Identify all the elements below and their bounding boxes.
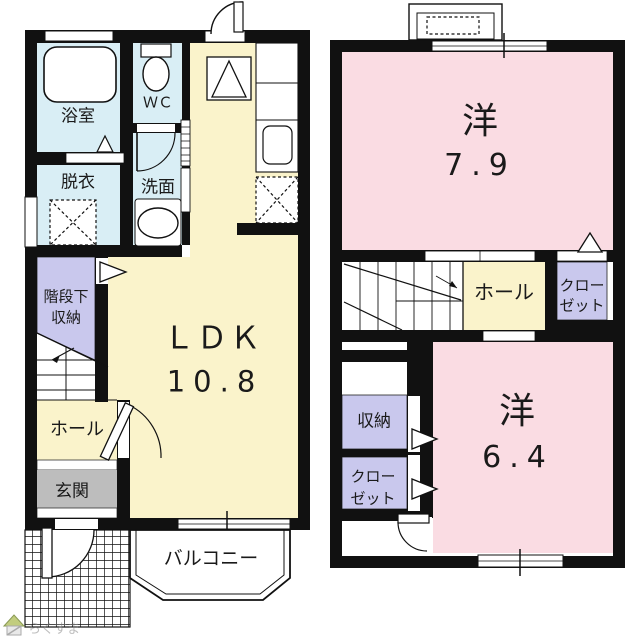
floor-plan-drawing <box>0 0 640 640</box>
landing2-2f <box>342 521 407 553</box>
label-room64-size: 6.4 <box>482 443 554 473</box>
label-entrance: 玄関 <box>55 484 89 501</box>
sliding-door-panel <box>181 168 190 212</box>
label-understair-2: 収納 <box>51 311 81 326</box>
sink-basin-icon <box>138 208 178 238</box>
label-hall-2f: ホール <box>474 282 534 302</box>
label-storage-2f: 収納 <box>357 414 391 431</box>
label-ldk: ＬＤＫ <box>164 324 263 355</box>
side-window <box>25 197 37 247</box>
entrance-step2 <box>37 508 117 518</box>
wc-door-gap <box>137 124 175 132</box>
hall2-door-gap <box>483 331 535 341</box>
label-dressing: 脱衣 <box>61 175 95 192</box>
washer-space-icon <box>50 200 96 245</box>
label-ldk-size: 10.8 <box>167 368 264 397</box>
refrigerator-space-icon <box>256 177 298 223</box>
watermark-logo-icon <box>4 615 24 635</box>
landing-2f <box>342 362 407 395</box>
toilet-tank-icon <box>141 44 171 57</box>
label-balcony: バルコニー <box>164 550 259 569</box>
entrance-door-leaf <box>42 528 52 578</box>
toilet-icon <box>143 57 169 91</box>
entrance-door-gap <box>55 519 98 529</box>
label-hall-1f: ホール <box>50 421 104 439</box>
bath-window <box>45 31 113 41</box>
label-room64-name: 洋 <box>499 394 535 430</box>
label-room79-name: 洋 <box>462 104 498 140</box>
room64-door-leaf <box>398 514 429 523</box>
label-closet-lower-2: ゼット <box>350 492 395 507</box>
backdoor-leaf <box>234 2 243 32</box>
watermark-text: らくすま <box>28 618 80 637</box>
kitchen-sink-icon <box>263 126 292 164</box>
label-washroom: 洗面 <box>141 180 175 197</box>
label-closet-upper-2: ゼット <box>559 299 604 314</box>
label-room79-size: 7.9 <box>444 151 516 181</box>
label-closet-upper-1: クロー <box>559 279 604 294</box>
entrance-step <box>37 460 117 470</box>
label-closet-lower-1: クロー <box>350 470 395 485</box>
floor-plan: 浴室 ＷＣ 脱衣 洗面 階段下 収納 ホール 玄関 ＬＤＫ 10.8 バルコニー… <box>0 0 640 640</box>
label-bath: 浴室 <box>61 109 95 126</box>
label-wc: ＷＣ <box>143 96 173 111</box>
bath-door-gap <box>66 153 124 163</box>
bathtub-icon <box>44 47 116 102</box>
label-understair-1: 階段下 <box>43 290 88 305</box>
